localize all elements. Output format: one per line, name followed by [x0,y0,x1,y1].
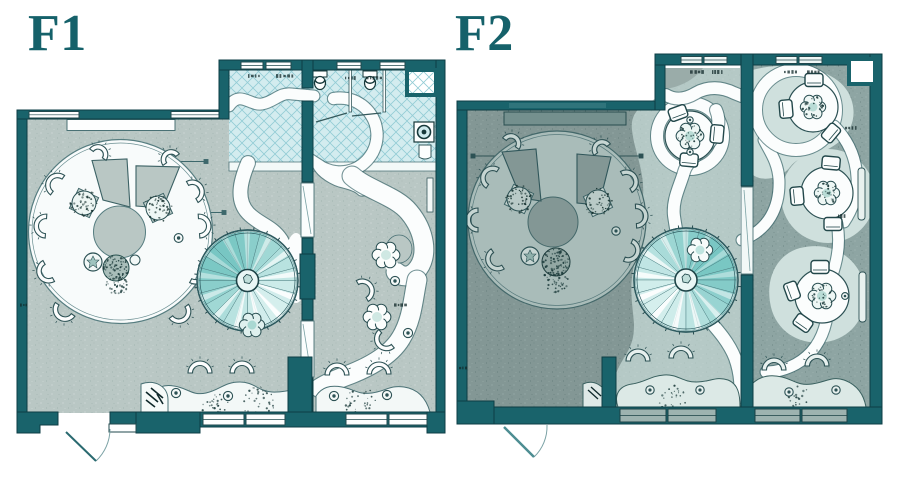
svg-text:F1: F1 [28,5,87,62]
svg-text:F2: F2 [455,5,514,62]
